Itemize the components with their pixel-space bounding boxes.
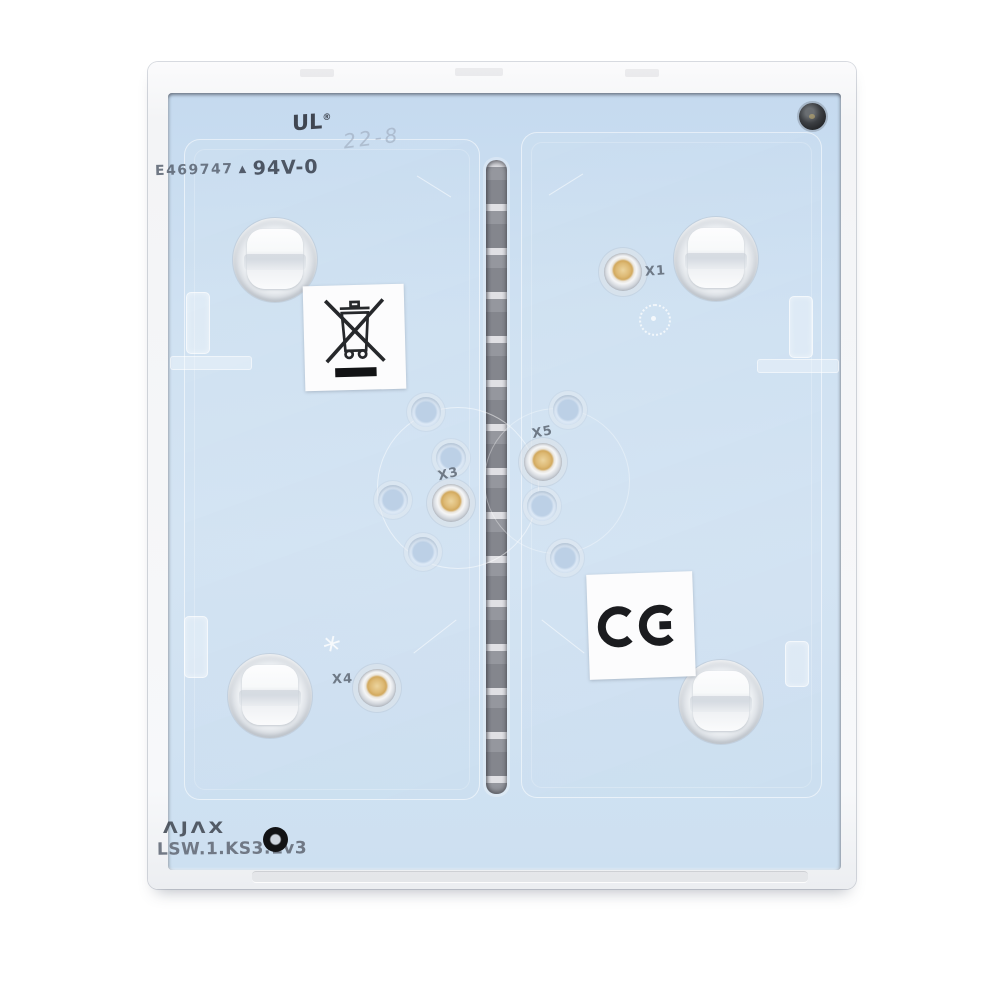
ul-file-number: E469747 — [155, 161, 234, 179]
mold-triangle: ▲ — [238, 163, 247, 174]
side-clip-tab — [184, 616, 208, 678]
crossed-out-wheelie-bin-icon — [317, 293, 391, 383]
ul-recognized-mark: UL® — [292, 109, 331, 136]
brand-logo: ΛJΛX — [163, 819, 226, 838]
led-x5 — [524, 443, 562, 481]
molded-hole — [550, 543, 580, 573]
molded-hole — [378, 485, 408, 515]
mold-date-wheel — [639, 304, 671, 336]
molded-hole — [527, 491, 557, 521]
mounting-hole-black — [263, 827, 288, 852]
molded-hole — [553, 395, 583, 425]
side-clip-tab — [789, 296, 813, 358]
mold-boss-circle — [484, 408, 630, 554]
side-clip-tab — [186, 292, 210, 354]
product-photo: X1 X3 X4 X5 E469747 ▲ — [0, 0, 1000, 1000]
frame-groove — [252, 871, 808, 883]
frame-notch — [625, 69, 659, 77]
side-clip-tab — [785, 641, 809, 687]
ul-file-marking: E469747 ▲ 94V-0 — [155, 156, 319, 182]
molded-hole — [408, 537, 438, 567]
flammability-rating: 94V-0 — [252, 156, 318, 180]
mold-ledge — [170, 356, 252, 370]
button-dome-top-right — [674, 217, 758, 301]
molded-hole — [411, 397, 441, 427]
led-x3 — [432, 484, 470, 522]
connector-label-x1: X1 — [645, 263, 667, 279]
registered-symbol: ® — [322, 113, 331, 124]
led-x1 — [604, 253, 642, 291]
frame-notch — [455, 68, 503, 76]
led-x4 — [358, 669, 396, 707]
frame-notch — [300, 69, 334, 77]
mold-ledge — [757, 359, 839, 373]
weee-label — [303, 284, 407, 392]
ce-label — [586, 571, 696, 680]
screw-top-right — [799, 103, 826, 130]
ce-mark-icon — [594, 591, 688, 660]
button-dome-bottom-left — [228, 654, 312, 738]
connector-label-x4: X4 — [332, 671, 354, 687]
